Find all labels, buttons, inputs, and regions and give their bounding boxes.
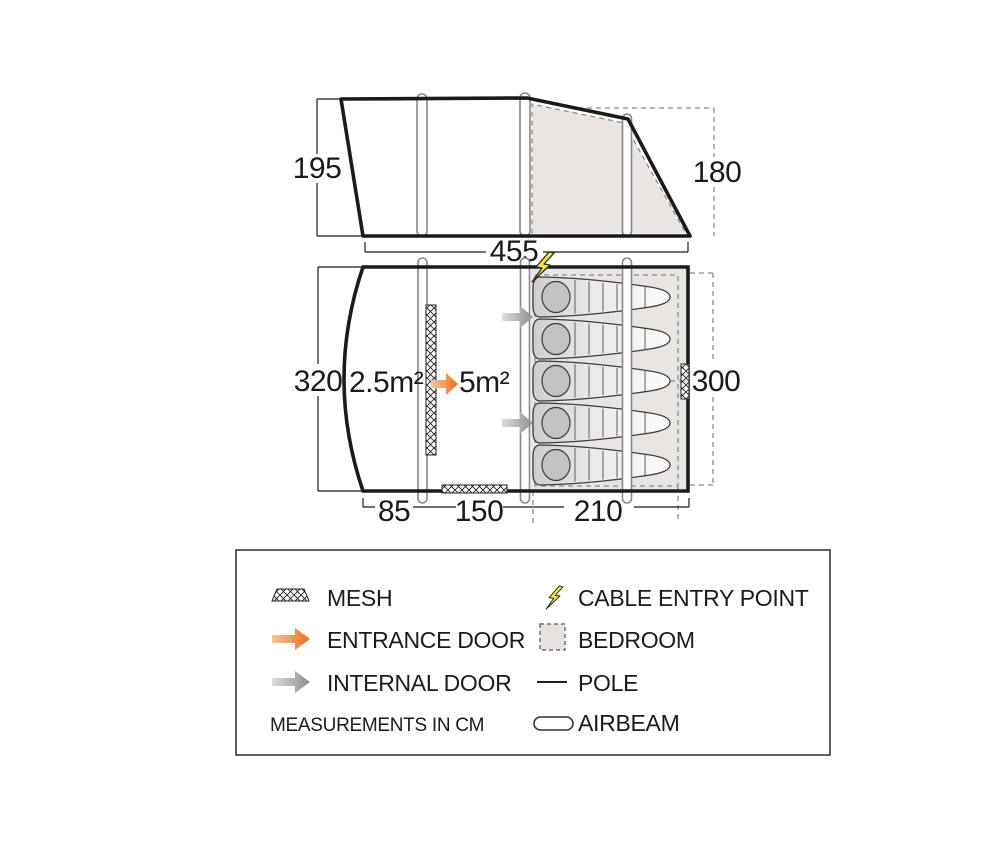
airbeam-tube bbox=[521, 258, 530, 503]
dim-porch-label: 85 bbox=[378, 495, 410, 528]
cable-entry-label: CABLE ENTRY POINT bbox=[578, 585, 809, 611]
mesh-icon bbox=[272, 589, 309, 601]
mesh-panel-bottom bbox=[442, 485, 507, 493]
measurements-note: MEASUREMENTS IN CM bbox=[270, 715, 484, 736]
side-view: 195 180 455 bbox=[293, 93, 742, 268]
bedroom-swatch-icon bbox=[540, 624, 565, 650]
living-area-label: 5m² bbox=[459, 366, 510, 399]
internal-door-label: INTERNAL DOOR bbox=[327, 670, 511, 696]
floor-plan: 2.5m² 5m² 320 300 85 150 210 bbox=[294, 252, 741, 528]
dim-bedroom-label: 210 bbox=[574, 495, 623, 528]
entrance-door-label: ENTRANCE DOOR bbox=[327, 627, 525, 653]
mesh-label: MESH bbox=[327, 585, 392, 611]
pole-label: POLE bbox=[578, 670, 638, 696]
dim-living-label: 150 bbox=[455, 495, 504, 528]
floorplan-height-right-label: 300 bbox=[692, 365, 741, 398]
airbeam-label: AIRBEAM bbox=[578, 710, 679, 736]
legend: MESH CABLE ENTRY POINT ENTRANCE DOOR BED… bbox=[236, 550, 830, 755]
side-view-tent-outline bbox=[341, 98, 690, 236]
porch-area-label: 2.5m² bbox=[349, 366, 424, 399]
side-view-width-label: 455 bbox=[490, 235, 539, 268]
airbeam-tube bbox=[623, 258, 632, 503]
airbeam-icon bbox=[534, 717, 573, 730]
side-view-height-left-label: 195 bbox=[293, 152, 342, 185]
bedroom-label: BEDROOM bbox=[578, 627, 695, 653]
tent-floorplan-diagram: 195 180 455 bbox=[0, 0, 1000, 841]
mesh-panel-right bbox=[681, 364, 689, 399]
floorplan-height-left-label: 320 bbox=[294, 365, 343, 398]
side-view-height-right-label: 180 bbox=[693, 156, 742, 189]
